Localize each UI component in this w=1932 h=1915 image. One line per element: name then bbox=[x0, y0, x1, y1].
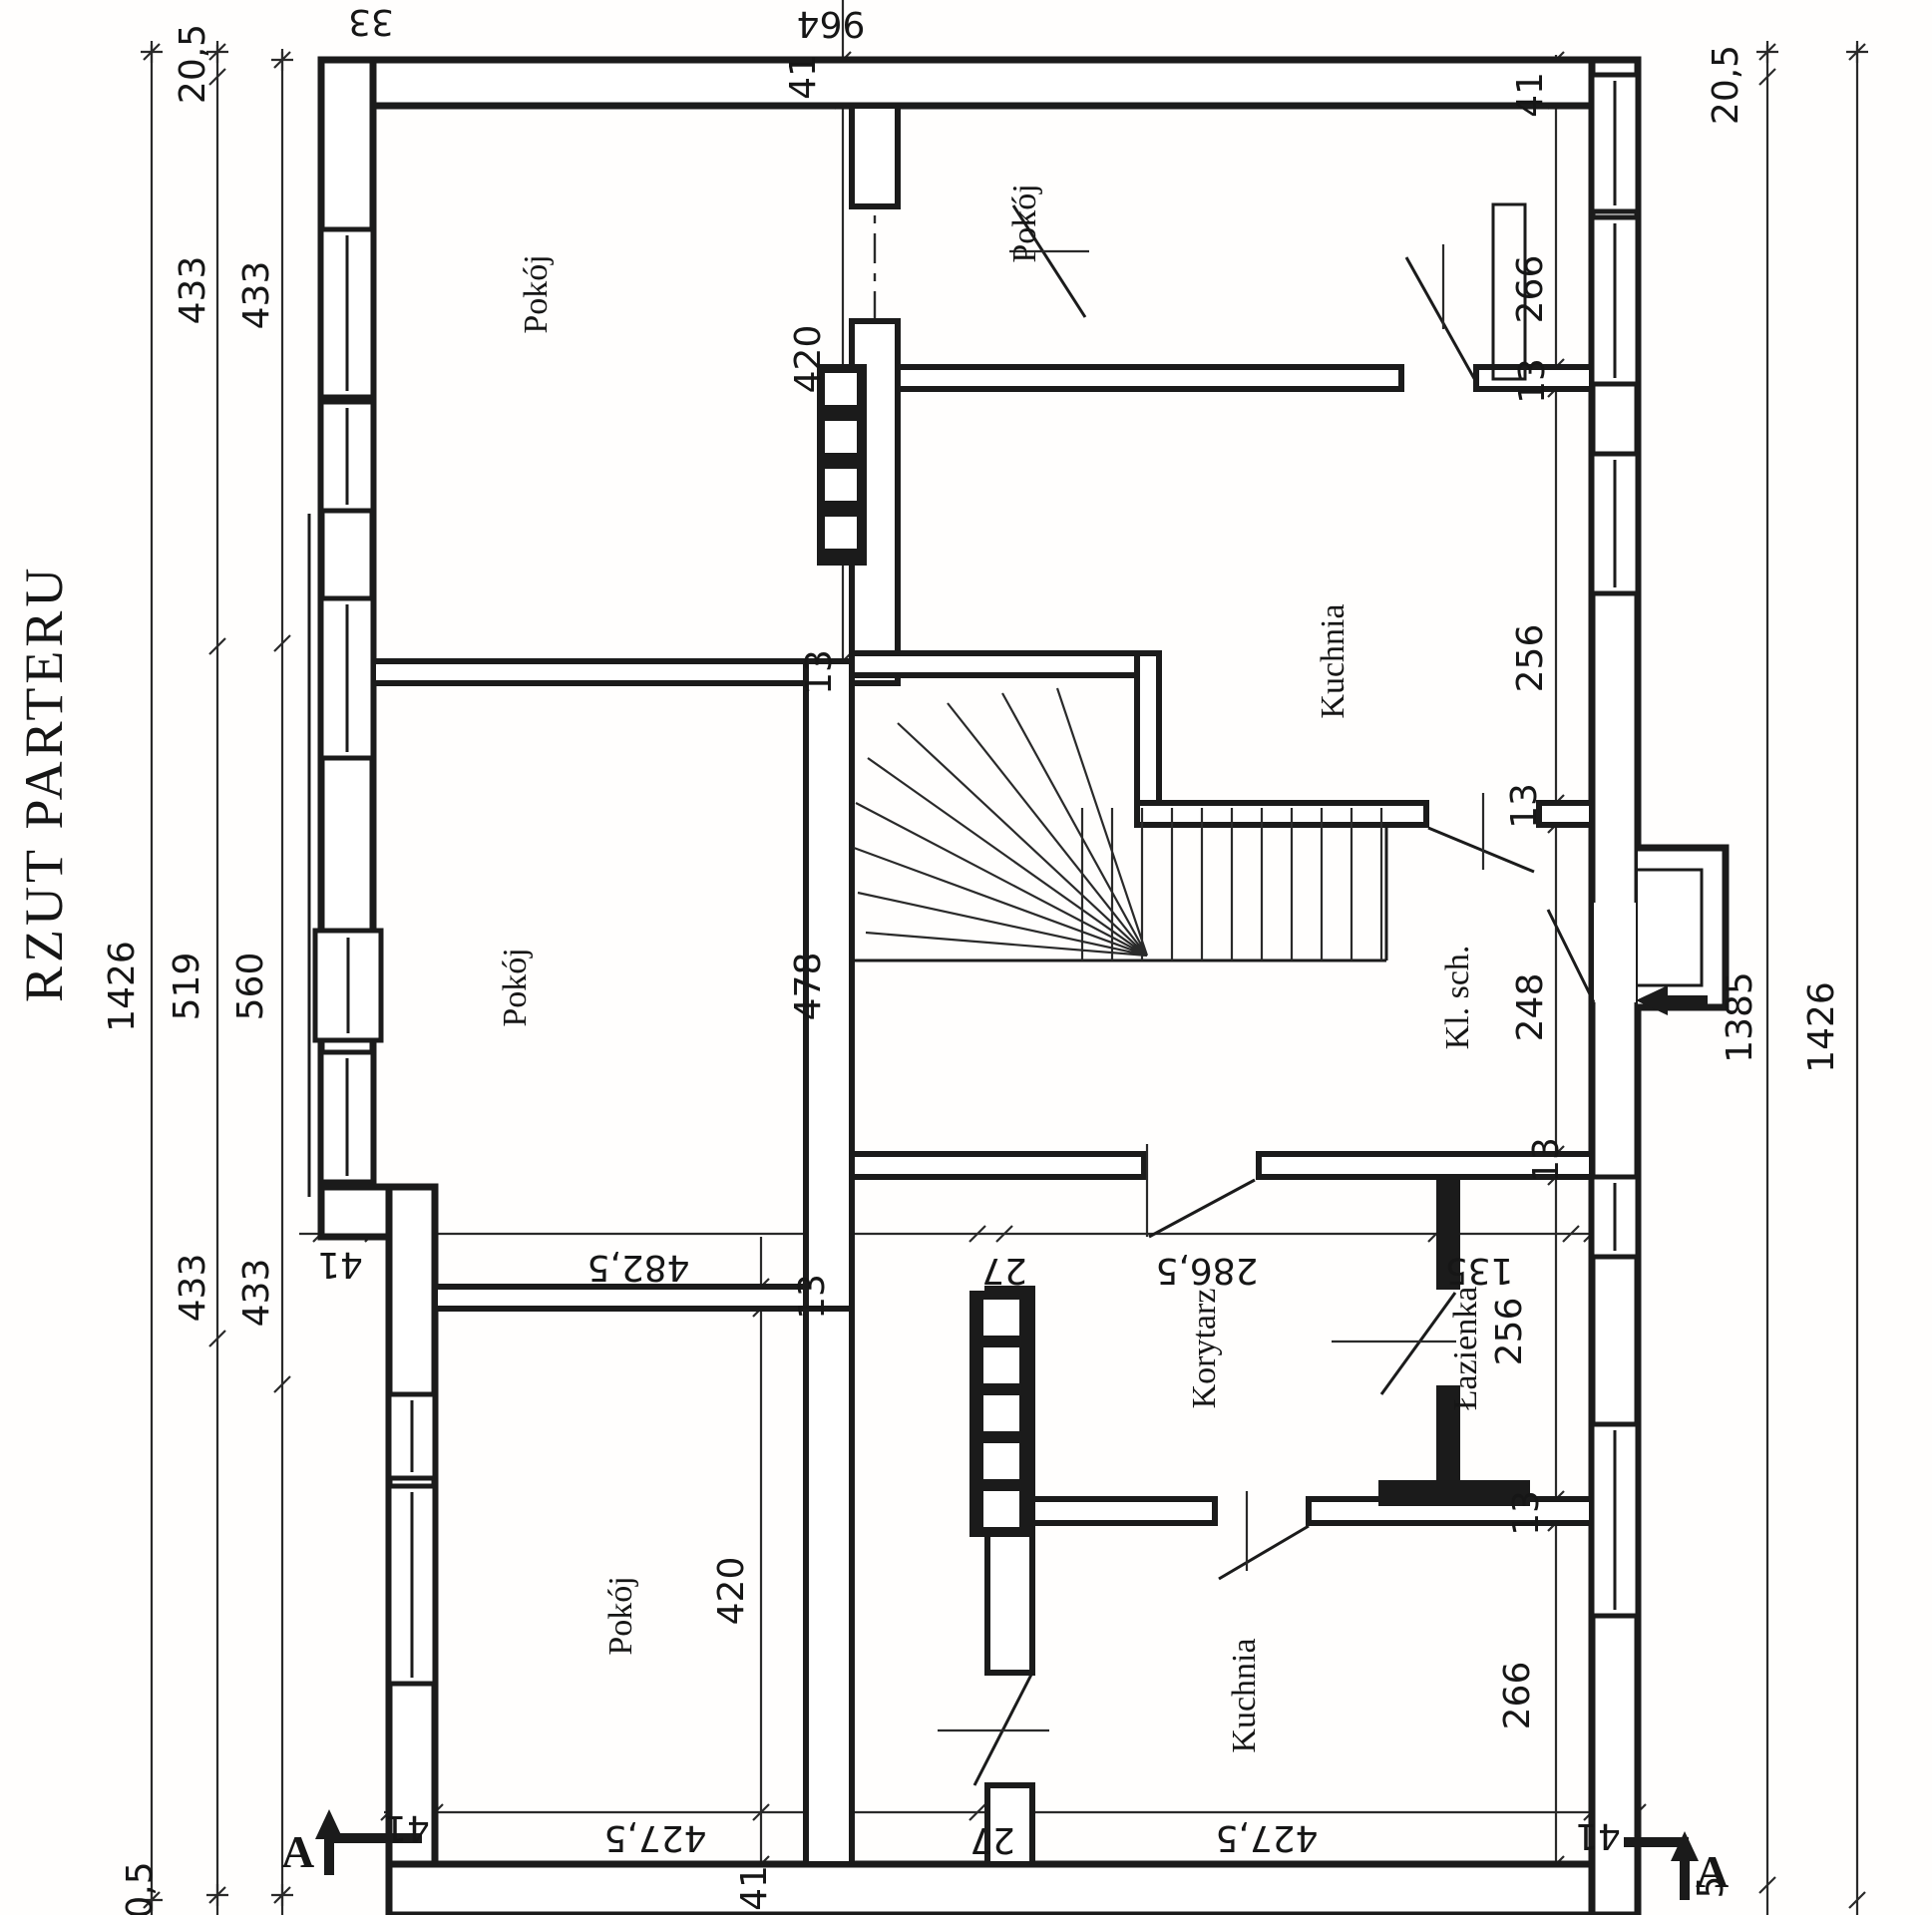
dimension-label: 427,5 bbox=[603, 1817, 706, 1858]
dimension-label: 41 bbox=[317, 1244, 363, 1285]
dimension-label: 1426 bbox=[1801, 981, 1842, 1073]
room-pokoj-middle: Pokój bbox=[497, 948, 534, 1026]
drawing-sheet: A A RZUT PARTERU PokójPokójKuchniaPokójK… bbox=[0, 0, 1932, 1915]
dimension-label: 560 bbox=[230, 953, 271, 1021]
dimension-label: 256 bbox=[1489, 1298, 1530, 1366]
interior-walls bbox=[373, 106, 1592, 1864]
dimension-label: 27 bbox=[969, 1819, 1015, 1860]
section-letter: A bbox=[281, 1826, 314, 1877]
dimension-label: 433 bbox=[236, 261, 277, 330]
drawing-title: RZUT PARTERU bbox=[14, 565, 74, 1002]
dimension-label: 286,5 bbox=[1155, 1250, 1258, 1291]
dimension-label: 427,5 bbox=[1215, 1817, 1318, 1858]
dimension-label: 482,5 bbox=[586, 1247, 689, 1288]
dimension-label: 13 bbox=[799, 649, 840, 695]
room-lazienka: Łazienka bbox=[1447, 1287, 1484, 1411]
dimension-label: 41 bbox=[1575, 1815, 1621, 1856]
dimension-label: 33 bbox=[348, 1, 394, 42]
room-klatka-schodowa: Kl. sch. bbox=[1439, 946, 1476, 1050]
dimension-label: 433 bbox=[236, 1259, 277, 1328]
room-pokoj-top-left: Pokój bbox=[518, 254, 555, 333]
dimension-label: 27 bbox=[981, 1250, 1027, 1291]
dimension-label: 433 bbox=[173, 256, 213, 325]
room-korytarz: Korytarz bbox=[1186, 1289, 1223, 1409]
dimension-label: 420 bbox=[788, 325, 829, 394]
dimension-label: 13 bbox=[792, 1274, 833, 1320]
dimension-label: 20,5 bbox=[173, 24, 213, 104]
dimension-label: 13 bbox=[1526, 1137, 1567, 1183]
room-pokoj-top-right: Pokój bbox=[1006, 184, 1043, 262]
dimension-label: 1385 bbox=[1720, 971, 1760, 1063]
dimension-label: 248 bbox=[1510, 973, 1551, 1042]
room-kuchnia-bottom: Kuchnia bbox=[1226, 1638, 1263, 1752]
dimension-label: 1426 bbox=[102, 941, 143, 1032]
dimension-label: 41 bbox=[783, 54, 824, 100]
dimension-label: 13 bbox=[1504, 783, 1545, 829]
dimension-label: 266 bbox=[1497, 1662, 1538, 1730]
dimension-label: 433 bbox=[173, 1254, 213, 1323]
dimension-label: 135 bbox=[1445, 1250, 1514, 1291]
dimension-label: 20,5 bbox=[1706, 45, 1746, 125]
dimension-label: 256 bbox=[1510, 624, 1551, 693]
entrance-porch bbox=[1636, 848, 1726, 1015]
dimension-label: 5 bbox=[1691, 1876, 1732, 1899]
dimension-label: 964 bbox=[797, 3, 866, 44]
dimension-label: 519 bbox=[167, 953, 207, 1021]
dimension-label: 41 bbox=[734, 1865, 775, 1911]
dimension-label: 41 bbox=[384, 1807, 430, 1848]
room-kuchnia-top: Kuchnia bbox=[1315, 603, 1352, 718]
dimension-label: 41 bbox=[1510, 72, 1551, 118]
dimension-label: 478 bbox=[788, 953, 829, 1021]
dimension-label: 266 bbox=[1510, 255, 1551, 324]
dimension-label: 13 bbox=[1506, 1490, 1547, 1536]
floor-plan-canvas: A A RZUT PARTERU PokójPokójKuchniaPokójK… bbox=[0, 0, 1932, 1915]
dimension-label: 13 bbox=[1512, 358, 1553, 404]
dimension-label: 0,5 bbox=[120, 1861, 161, 1915]
room-pokoj-bottom-left: Pokój bbox=[602, 1576, 639, 1655]
dimension-label: 420 bbox=[711, 1557, 752, 1626]
